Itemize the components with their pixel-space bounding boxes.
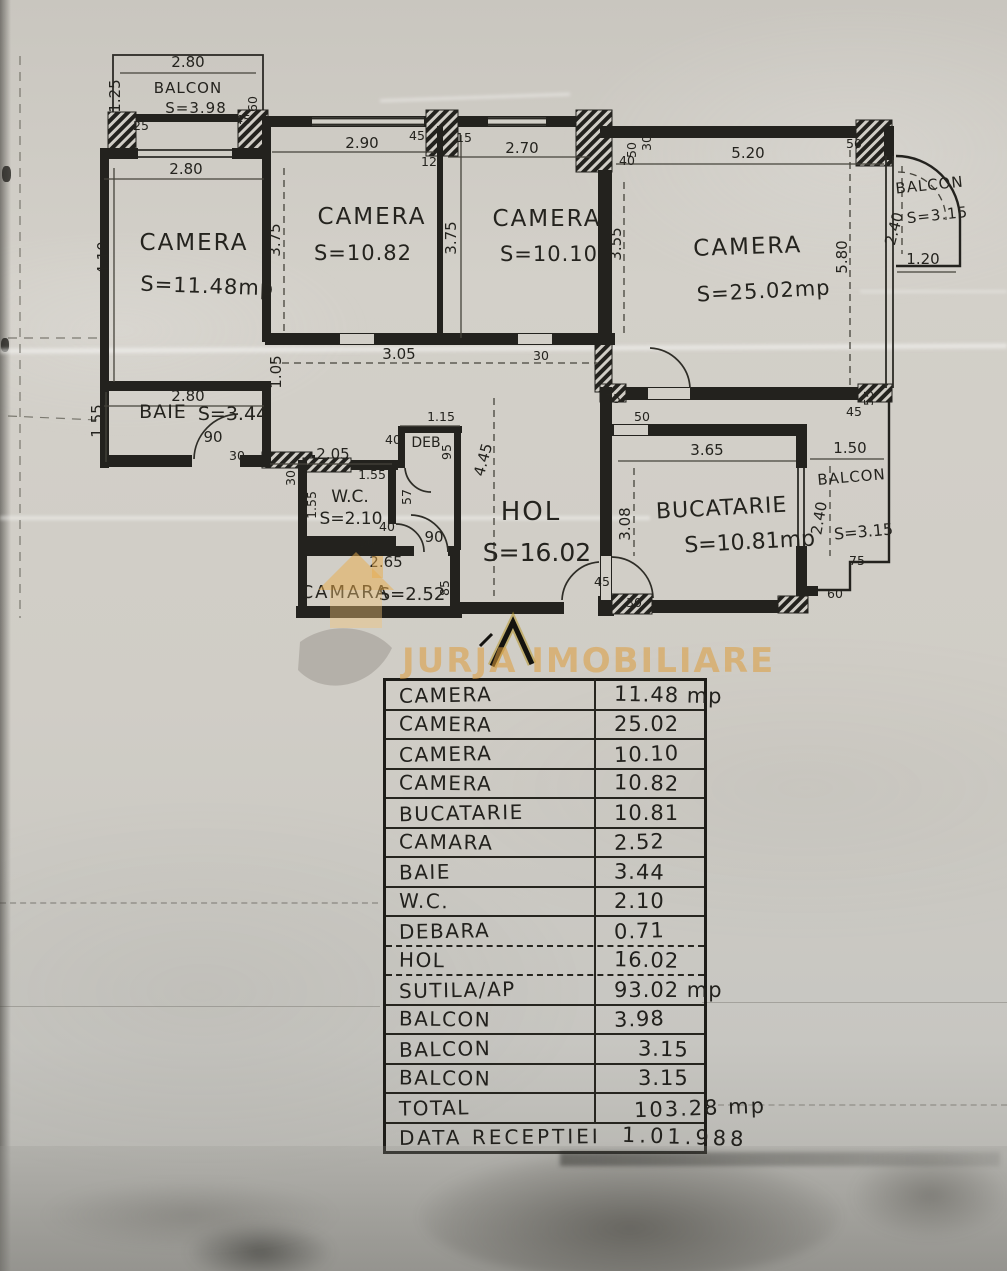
- wall: [796, 424, 807, 468]
- scan-smudge: [850, 1150, 1007, 1240]
- row-label: W.C.: [399, 889, 450, 914]
- row-value: 0.71: [614, 918, 666, 944]
- dimension-label: 45: [235, 112, 251, 127]
- dimension-label: 45: [409, 128, 425, 143]
- table-row: SUTILA/AP93.02 mp: [386, 976, 704, 1006]
- row-label: CAMERA: [399, 712, 493, 737]
- row-label: HOL: [399, 948, 446, 973]
- row-value: 1.01.988: [622, 1123, 748, 1151]
- table-row: CAMERA11.48 mp: [386, 681, 704, 711]
- dimension-label: 5.20: [731, 144, 764, 162]
- dimension-label: 30: [229, 448, 245, 463]
- dimension-label: 85: [437, 580, 452, 596]
- room-label: BALCON: [817, 465, 887, 489]
- room-label: BUCATARIE: [655, 493, 787, 525]
- dimension-label: 50: [624, 142, 639, 158]
- row-value: 3.15: [638, 1066, 689, 1090]
- dimension-label: 3.65: [690, 441, 723, 459]
- scan-smudge: [560, 1152, 1000, 1166]
- wall: [100, 455, 192, 467]
- dimension-label: 30: [626, 595, 642, 610]
- wall: [454, 426, 461, 550]
- room-label: CAMERA: [140, 230, 249, 256]
- dimension-label: 2.70: [505, 139, 538, 157]
- row-value: 25.02: [614, 712, 679, 736]
- row-label: BALCON: [399, 1007, 492, 1032]
- dimension-label: 2.65: [369, 553, 402, 571]
- room-label: BALCON: [154, 79, 222, 97]
- row-value: 2.52: [614, 829, 666, 855]
- wall: [884, 126, 894, 160]
- dimension-label: 1.55: [358, 467, 386, 482]
- row-label: SUTILA/AP: [399, 977, 516, 1003]
- row-value: 3.44: [614, 859, 665, 884]
- table-row: BALCON3.15: [386, 1035, 704, 1065]
- dimension-label: 50: [634, 409, 650, 424]
- door-gap: [518, 334, 552, 344]
- wall: [296, 606, 462, 618]
- dimension-label: 60: [245, 96, 260, 112]
- row-value: 11.48 mp: [614, 681, 723, 708]
- table-row-reception-date: DATA RECEPTIEI1.01.988: [386, 1124, 704, 1152]
- door-arc: [405, 468, 431, 492]
- row-label: DEBARA: [399, 918, 491, 944]
- dimension-label: 90: [203, 428, 222, 446]
- dimension-label: 90: [424, 528, 443, 546]
- dimension-label: 2.05: [316, 445, 349, 463]
- wall: [600, 387, 892, 400]
- wall: [388, 538, 396, 546]
- table-row: HOL16.02: [386, 947, 704, 977]
- door-gap: [648, 388, 690, 399]
- table-row: BALCON3.98: [386, 1006, 704, 1036]
- room-label: DEB: [411, 435, 440, 451]
- room-area-label: S=16.02: [483, 538, 591, 567]
- row-value: 3.98: [614, 1006, 666, 1032]
- door-gap: [340, 334, 374, 344]
- table-row: CAMERA25.02: [386, 711, 704, 741]
- dimension-label: 2.80: [171, 53, 204, 71]
- row-value: 93.02 mp: [614, 978, 723, 1002]
- dimension-label: 5.80: [833, 240, 851, 273]
- dimension-label: 1.15: [427, 409, 455, 424]
- room-area-label: S=10.10: [500, 242, 598, 266]
- wall: [298, 536, 396, 546]
- room-area-table: CAMERA11.48 mp CAMERA25.02 CAMERA10.10 C…: [383, 678, 707, 1154]
- room-area-label: S=11.48mp: [140, 272, 275, 301]
- dimension-label: 2.80: [171, 387, 204, 405]
- table-row: BAIE3.44: [386, 858, 704, 888]
- door-arc: [612, 557, 653, 598]
- row-label: BAIE: [399, 859, 451, 884]
- row-label: CAMERA: [399, 741, 493, 767]
- dimension-label: 4.45: [470, 441, 496, 478]
- dimension-label: 1.55: [88, 404, 106, 437]
- dimension-label: 1.55: [304, 491, 319, 519]
- table-row: DEBARA0.71: [386, 917, 704, 947]
- row-label: CAMERA: [399, 682, 493, 708]
- dimension-label: 45: [846, 404, 862, 419]
- room-area-label: S=2.52: [379, 584, 446, 605]
- door-arc: [650, 348, 690, 388]
- dimension-label: 40: [385, 432, 401, 447]
- dimension-label: 45: [594, 574, 610, 589]
- row-value: 10.81: [614, 801, 679, 825]
- dimension-label: 57: [399, 489, 414, 505]
- fold-line: [702, 1002, 1007, 1003]
- dimension-label: 30: [533, 348, 549, 363]
- row-value: 2.10: [614, 889, 665, 913]
- dimension-label: 3.08: [616, 507, 634, 540]
- fold-line: [0, 1006, 380, 1007]
- room-label: W.C.: [331, 487, 369, 507]
- table-row: BUCATARIE10.81: [386, 799, 704, 829]
- scan-smudge: [185, 1222, 335, 1271]
- dimension-label: 2.90: [345, 134, 378, 152]
- scanned-floor-plan-document: BALCON S=3.98 CAMERA S=11.48mp CAMERA S=…: [0, 0, 1007, 1271]
- room-area-label: S=2.10: [320, 509, 383, 529]
- north-arrow-icon: [480, 622, 532, 666]
- dimension-label: 2.40: [807, 500, 831, 536]
- wall: [806, 586, 818, 596]
- table-row: CAMERA10.10: [386, 740, 704, 770]
- room-area-label: S=3.15: [833, 519, 894, 543]
- dimension-label: 2.40: [881, 210, 907, 247]
- scan-noise-band: [0, 1146, 1007, 1271]
- dimension-label: 95: [439, 444, 454, 460]
- dimension-label: 30: [359, 535, 375, 550]
- room-area-label: S=3.44: [198, 403, 268, 425]
- table-row: TOTAL103.28 mp: [386, 1094, 704, 1124]
- row-label: BUCATARIE: [399, 800, 524, 826]
- row-label: CAMARA: [399, 830, 494, 855]
- wall: [460, 602, 564, 614]
- dimension-label: 60: [827, 586, 843, 601]
- room-area-label: S=3.98: [165, 99, 227, 117]
- row-value: 10.10: [614, 741, 680, 767]
- dimension-label: 30: [639, 135, 654, 151]
- dimension-label: 40: [379, 519, 395, 534]
- table-row: CAMERA10.82: [386, 770, 704, 800]
- wall: [388, 460, 396, 524]
- dimension-label: 3.05: [382, 345, 415, 363]
- scan-smudge: [420, 1150, 840, 1271]
- room-area-label: S=25.02mp: [696, 276, 831, 307]
- dimension-label: 1.05: [267, 355, 285, 388]
- table-row: BALCON3.15: [386, 1065, 704, 1095]
- dimension-label: 15: [456, 130, 472, 145]
- row-label: BALCON: [399, 1036, 492, 1062]
- dimension-label: 3.75: [266, 223, 284, 256]
- row-label: DATA RECEPTIEI: [399, 1124, 601, 1150]
- dimension-label: 1.50: [833, 439, 866, 457]
- room-area-label: S=10.82: [314, 241, 412, 265]
- row-value: 10.82: [614, 770, 680, 796]
- row-value: 103.28 mp: [634, 1093, 767, 1122]
- dimension-label: 4.10: [94, 241, 112, 274]
- dimension-label: 30: [283, 470, 298, 486]
- wall: [265, 333, 615, 345]
- room-label: CAMERA: [493, 206, 602, 232]
- column: [576, 110, 612, 172]
- room-area-label: S=10.81mp: [684, 527, 816, 559]
- dimension-label: 12: [421, 154, 437, 169]
- dimension-label: 55: [861, 390, 876, 406]
- row-value: 16.02: [614, 947, 680, 973]
- floor-plan: BALCON S=3.98 CAMERA S=11.48mp CAMERA S=…: [0, 0, 1007, 700]
- dimension-label: 75: [605, 391, 621, 406]
- dimension-label: 1.25: [106, 79, 124, 112]
- table-row: CAMARA2.52: [386, 829, 704, 859]
- dimension-label: 1.20: [906, 250, 939, 268]
- dimension-label: 50: [846, 136, 862, 151]
- room-label: CAMERA: [318, 204, 427, 230]
- dimension-label: 2.80: [169, 160, 202, 178]
- row-value: 3.15: [638, 1036, 689, 1061]
- wall: [398, 426, 462, 433]
- door-gap: [614, 425, 648, 435]
- room-label: CAMARA: [301, 582, 390, 603]
- guide-line: [8, 416, 98, 420]
- row-label: TOTAL: [399, 1095, 470, 1120]
- room-label: HOL: [501, 497, 562, 527]
- table-row: W.C.2.10: [386, 888, 704, 918]
- fold-line: [0, 902, 378, 904]
- column: [778, 596, 808, 613]
- column: [108, 112, 136, 154]
- dimension-label: 25: [133, 118, 149, 133]
- scan-smudge: [40, 1180, 340, 1250]
- dimension-label: 3.55: [607, 227, 625, 260]
- dimension-label: 75: [849, 553, 865, 568]
- room-label: CAMERA: [693, 232, 803, 262]
- row-label: CAMERA: [399, 771, 493, 796]
- dimension-label: 3.75: [442, 221, 460, 254]
- row-label: BALCON: [399, 1066, 492, 1091]
